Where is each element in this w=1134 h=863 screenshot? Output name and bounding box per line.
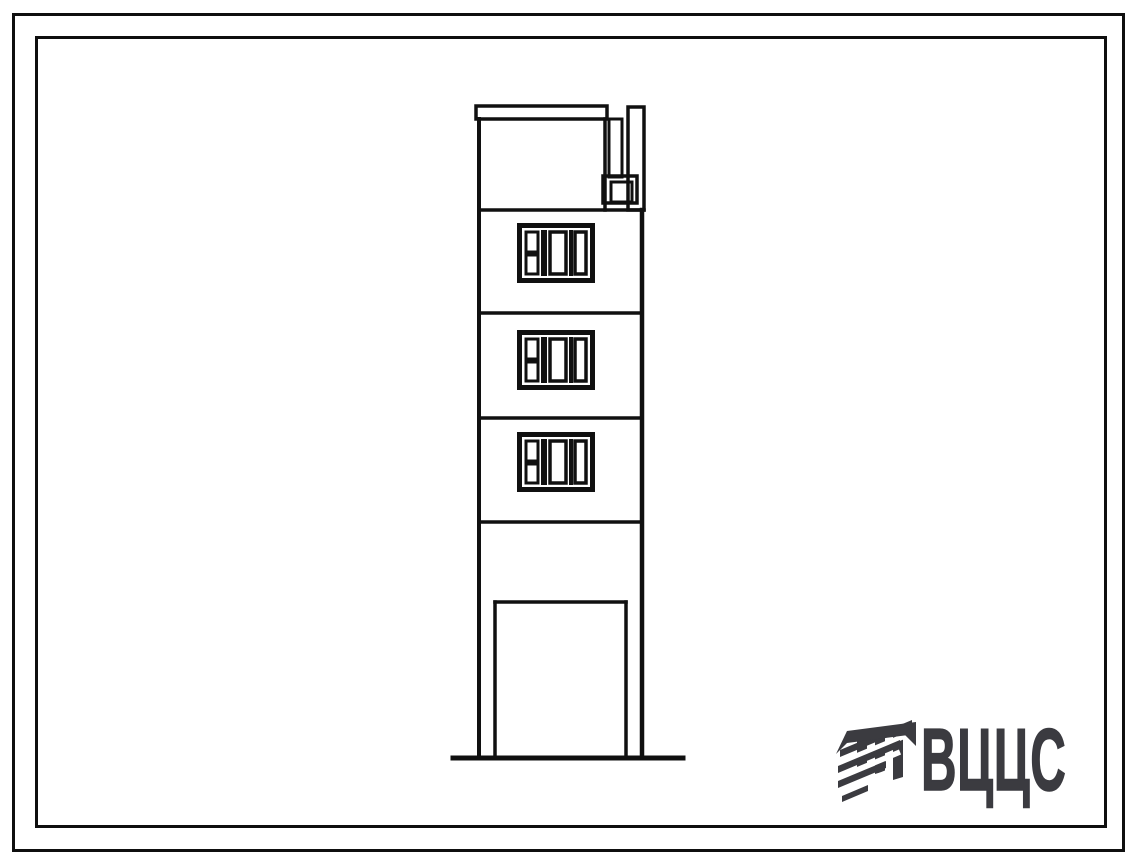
drawing-sheet: ВЦЦС: [0, 0, 1134, 863]
roof-stack: [603, 107, 644, 210]
institute-logo-text: ВЦЦС: [921, 700, 1066, 820]
window: [520, 435, 593, 490]
window: [520, 333, 593, 388]
floor-lines: [479, 210, 644, 522]
parapet: [476, 106, 607, 119]
attic-floor: [479, 119, 605, 758]
institute-logo: ВЦЦС: [830, 700, 1090, 810]
pilotis-columns: [495, 602, 626, 758]
institute-logo-mark-icon: [830, 700, 922, 806]
window: [520, 226, 593, 281]
